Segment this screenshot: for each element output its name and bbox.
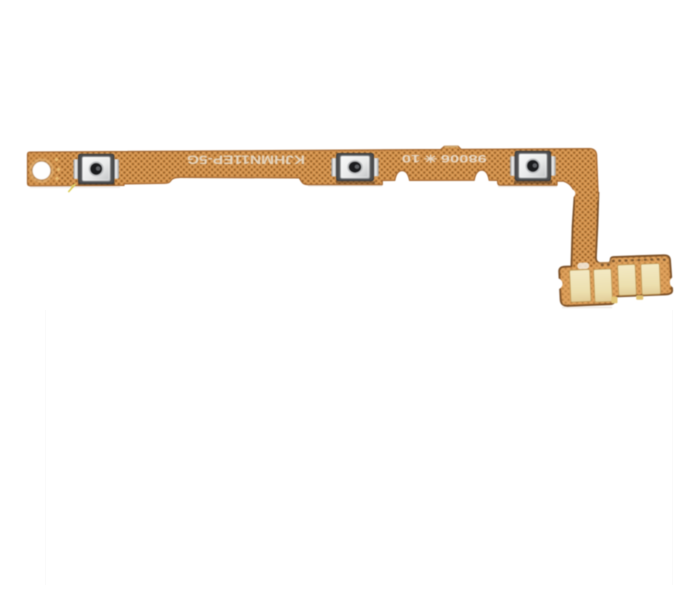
svg-text:98006 ✳ 10: 98006 ✳ 10 [402,152,487,164]
svg-text:KJHMN11EP-5G: KJHMN11EP-5G [187,153,305,167]
